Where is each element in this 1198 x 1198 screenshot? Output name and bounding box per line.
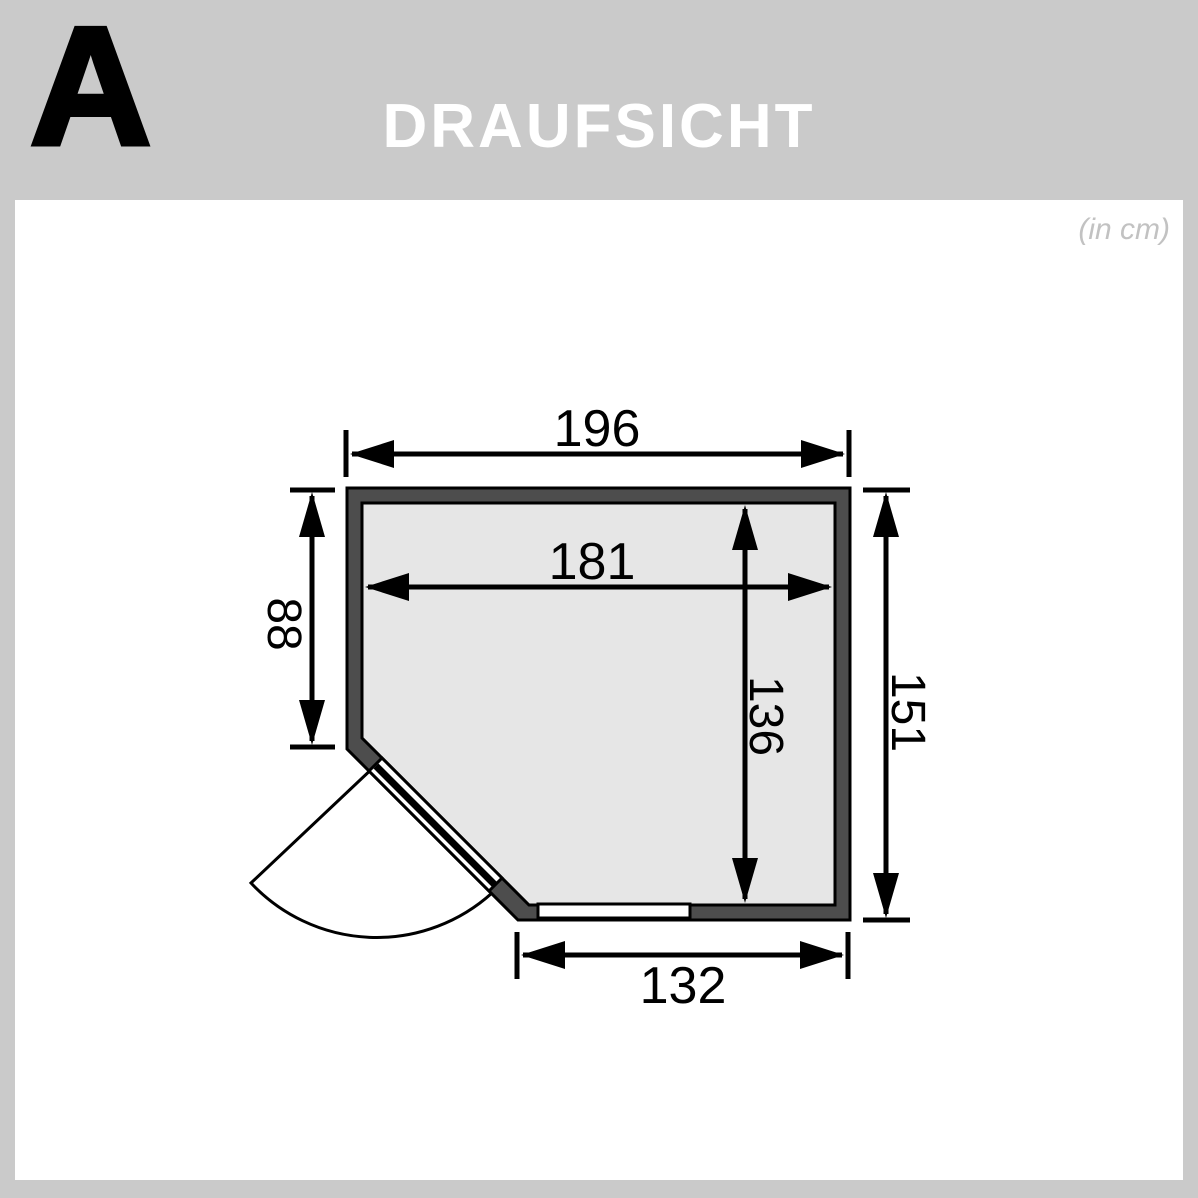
arrowhead-right [801,440,845,468]
arrowhead-right [800,941,844,969]
dim-bottom-width: 132 [517,932,848,1015]
dim-label-left-wall: 88 [257,597,310,650]
dim-outer-width: 196 [346,400,849,477]
floor-plan-diagram: 196 181 88 136 151 132 [0,0,1198,1198]
dim-label-inner-depth: 136 [739,676,792,756]
dim-label-inner-width: 181 [549,533,636,591]
dim-label-bottom-width: 132 [640,957,727,1015]
window-strip [538,904,690,918]
arrowhead-left [350,440,394,468]
arrowhead-up [873,492,899,537]
dim-left-wall: 88 [257,490,335,747]
dim-outer-depth: 151 [863,490,934,920]
arrowhead-down [299,700,325,745]
dim-label-outer-depth: 151 [881,672,934,752]
arrowhead-up [299,492,325,537]
arrowhead-left [521,941,565,969]
arrowhead-down [873,873,899,918]
dim-label-outer-width: 196 [554,400,641,458]
